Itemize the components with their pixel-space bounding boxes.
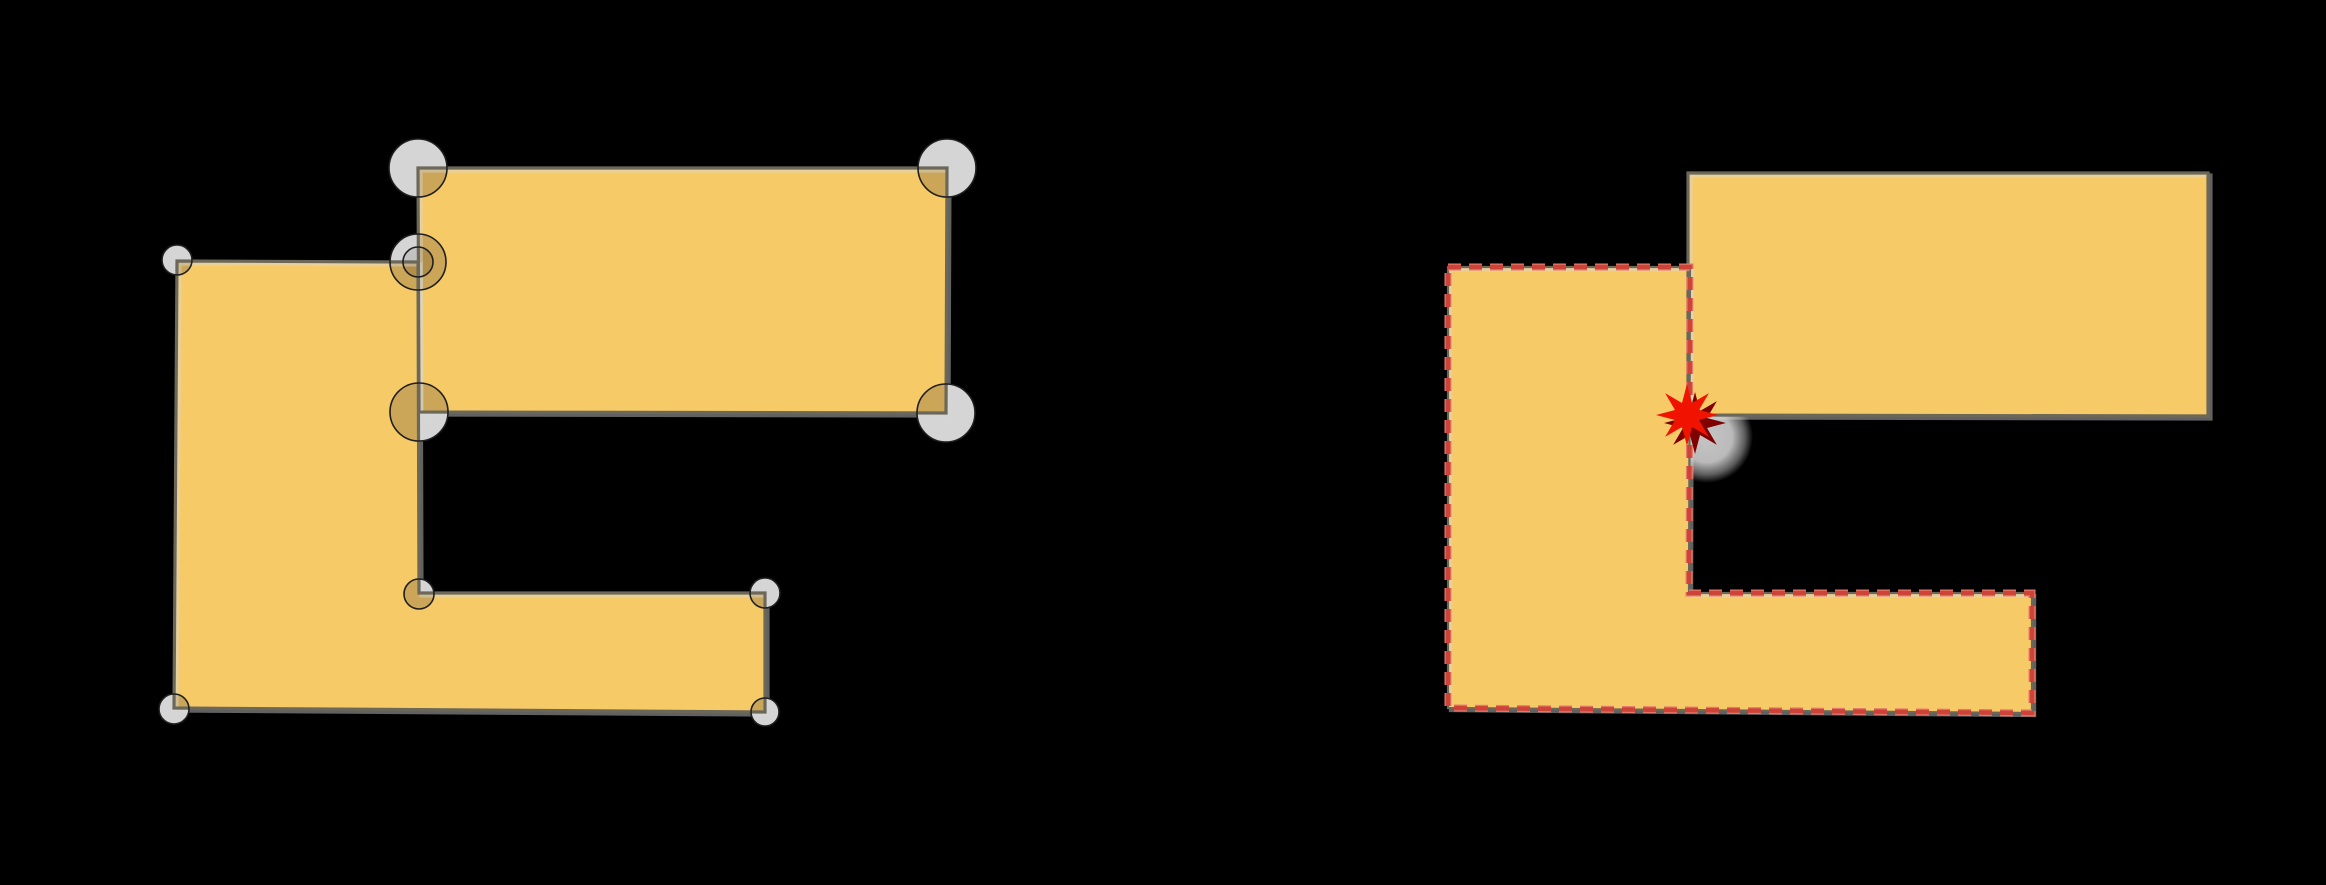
left-rectangle-fill — [418, 168, 947, 413]
diagram-svg — [0, 0, 2326, 885]
right-rectangle-fill — [1688, 173, 2208, 416]
snap-point-star — [1656, 384, 1718, 446]
figure-canvas — [0, 0, 2326, 885]
